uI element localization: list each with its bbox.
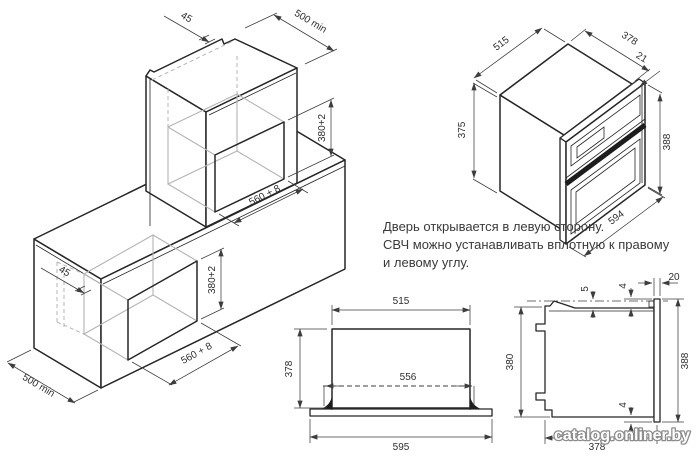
- dim-oven-body-height: 375: [457, 121, 468, 138]
- watermark-text: catalog.onliner.by: [554, 427, 690, 444]
- top-view-left-bracket: [321, 395, 332, 409]
- top-view-body: [332, 329, 470, 408]
- note-line-2: СВЧ можно устанавливать вплотную к право…: [383, 237, 670, 252]
- dim-oven-door-offset: 21: [634, 50, 650, 65]
- technical-drawing: 45 500 min 380+2 560 + 8 45 380+2 560 + …: [0, 0, 696, 456]
- dim-side-door-thickness: 20: [668, 272, 680, 283]
- side-view-figure: 20 4 5 380 388 4 378: [505, 272, 691, 453]
- dim-upper-clearance: 45: [179, 10, 195, 25]
- dim-topview-door-width: 595: [393, 442, 410, 453]
- note-line-1: Дверь открывается в левую сторону.: [383, 219, 604, 234]
- side-view-door: [654, 299, 660, 422]
- top-view-right-bracket: [470, 395, 481, 409]
- watermark: catalog.onliner.by catalog.onliner.by: [554, 427, 691, 445]
- niche-isometric-figure: 45 500 min 380+2 560 + 8 45 380+2 560 + …: [7, 8, 345, 403]
- side-view-body: [536, 301, 654, 417]
- dim-oven-door-height: 388: [662, 133, 673, 150]
- installation-notes: Дверь открывается в левую сторону. СВЧ м…: [383, 219, 670, 270]
- dim-side-bottom-gap: 4: [618, 402, 629, 408]
- dim-lower-depth: 500 min: [20, 372, 56, 400]
- dim-topview-depth: 378: [284, 360, 295, 377]
- dim-upper-height: 380+2: [317, 114, 328, 143]
- dim-topview-clip-width: 556: [400, 372, 417, 383]
- note-line-3: и левому углу.: [383, 255, 469, 270]
- dim-topview-body-width: 515: [393, 296, 410, 307]
- dim-lower-height: 380+2: [207, 266, 218, 295]
- dim-side-top-clearance: 5: [580, 286, 591, 292]
- dim-upper-depth: 500 min: [292, 8, 328, 36]
- dim-side-top-gap: 4: [618, 283, 629, 289]
- dim-side-front-height: 388: [680, 352, 691, 369]
- installation-diagram-page: 45 500 min 380+2 560 + 8 45 380+2 560 + …: [0, 0, 696, 456]
- top-view-figure: 556 515 378 595: [284, 296, 492, 453]
- dim-oven-width: 515: [492, 34, 512, 53]
- top-view-door: [310, 409, 492, 416]
- dim-oven-depth: 378: [619, 30, 639, 48]
- dim-side-body-height: 380: [505, 353, 516, 370]
